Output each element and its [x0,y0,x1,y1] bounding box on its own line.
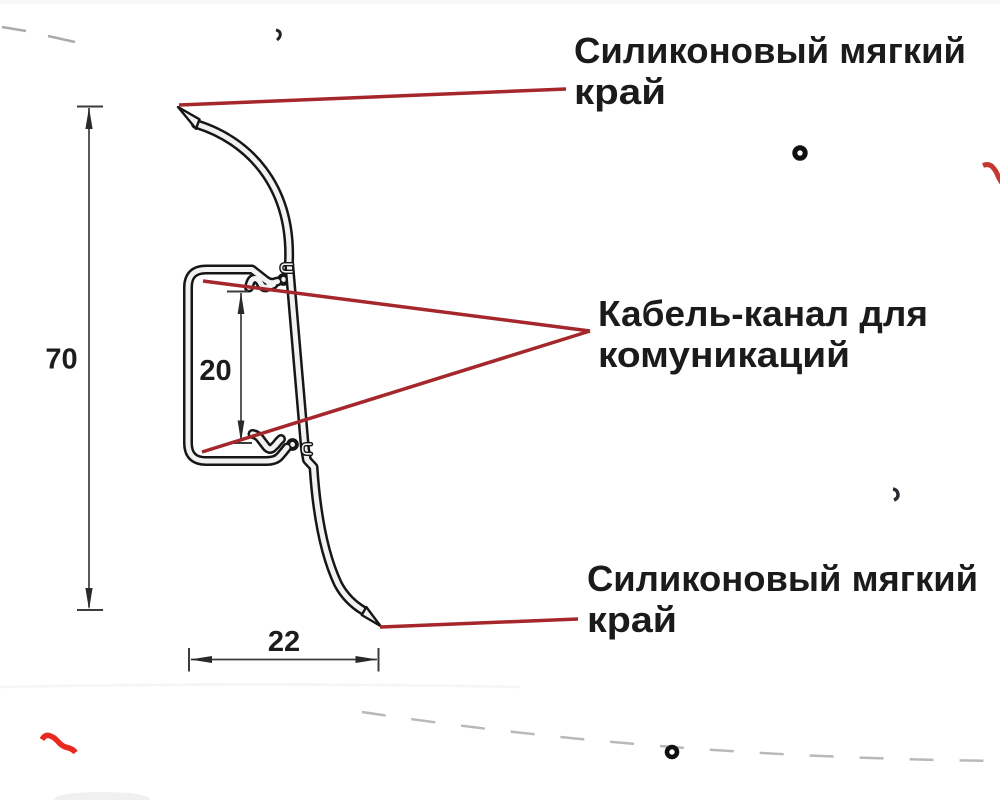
svg-text:Силиконовый мягкий: Силиконовый мягкий [587,558,978,599]
svg-text:Кабель-канал для: Кабель-канал для [598,293,928,334]
svg-text:край: край [574,71,666,112]
svg-text:Силиконовый мягкий: Силиконовый мягкий [574,30,966,71]
svg-text:комуникаций: комуникаций [598,334,850,375]
svg-text:край: край [587,599,677,640]
svg-text:70: 70 [45,344,77,376]
svg-text:20: 20 [199,355,231,387]
svg-text:22: 22 [268,626,300,658]
